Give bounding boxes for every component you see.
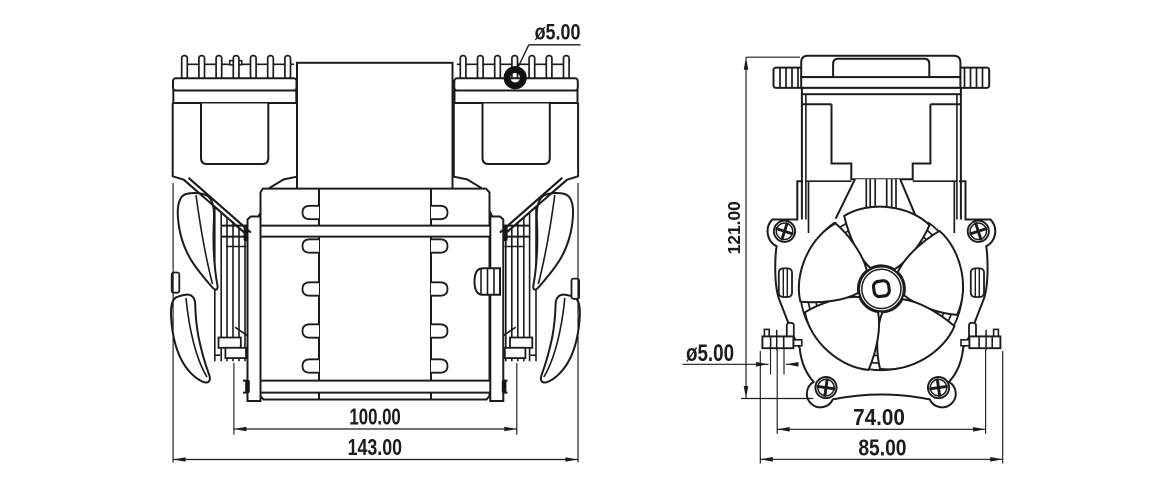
svg-text:ø5.00: ø5.00	[686, 340, 734, 367]
svg-text:100.00: 100.00	[349, 405, 400, 430]
svg-text:143.00: 143.00	[348, 435, 402, 461]
svg-text:74.00: 74.00	[853, 404, 905, 431]
svg-text:121.00: 121.00	[724, 201, 744, 254]
svg-text:ø5.00: ø5.00	[535, 21, 581, 45]
svg-text:85.00: 85.00	[858, 435, 906, 461]
